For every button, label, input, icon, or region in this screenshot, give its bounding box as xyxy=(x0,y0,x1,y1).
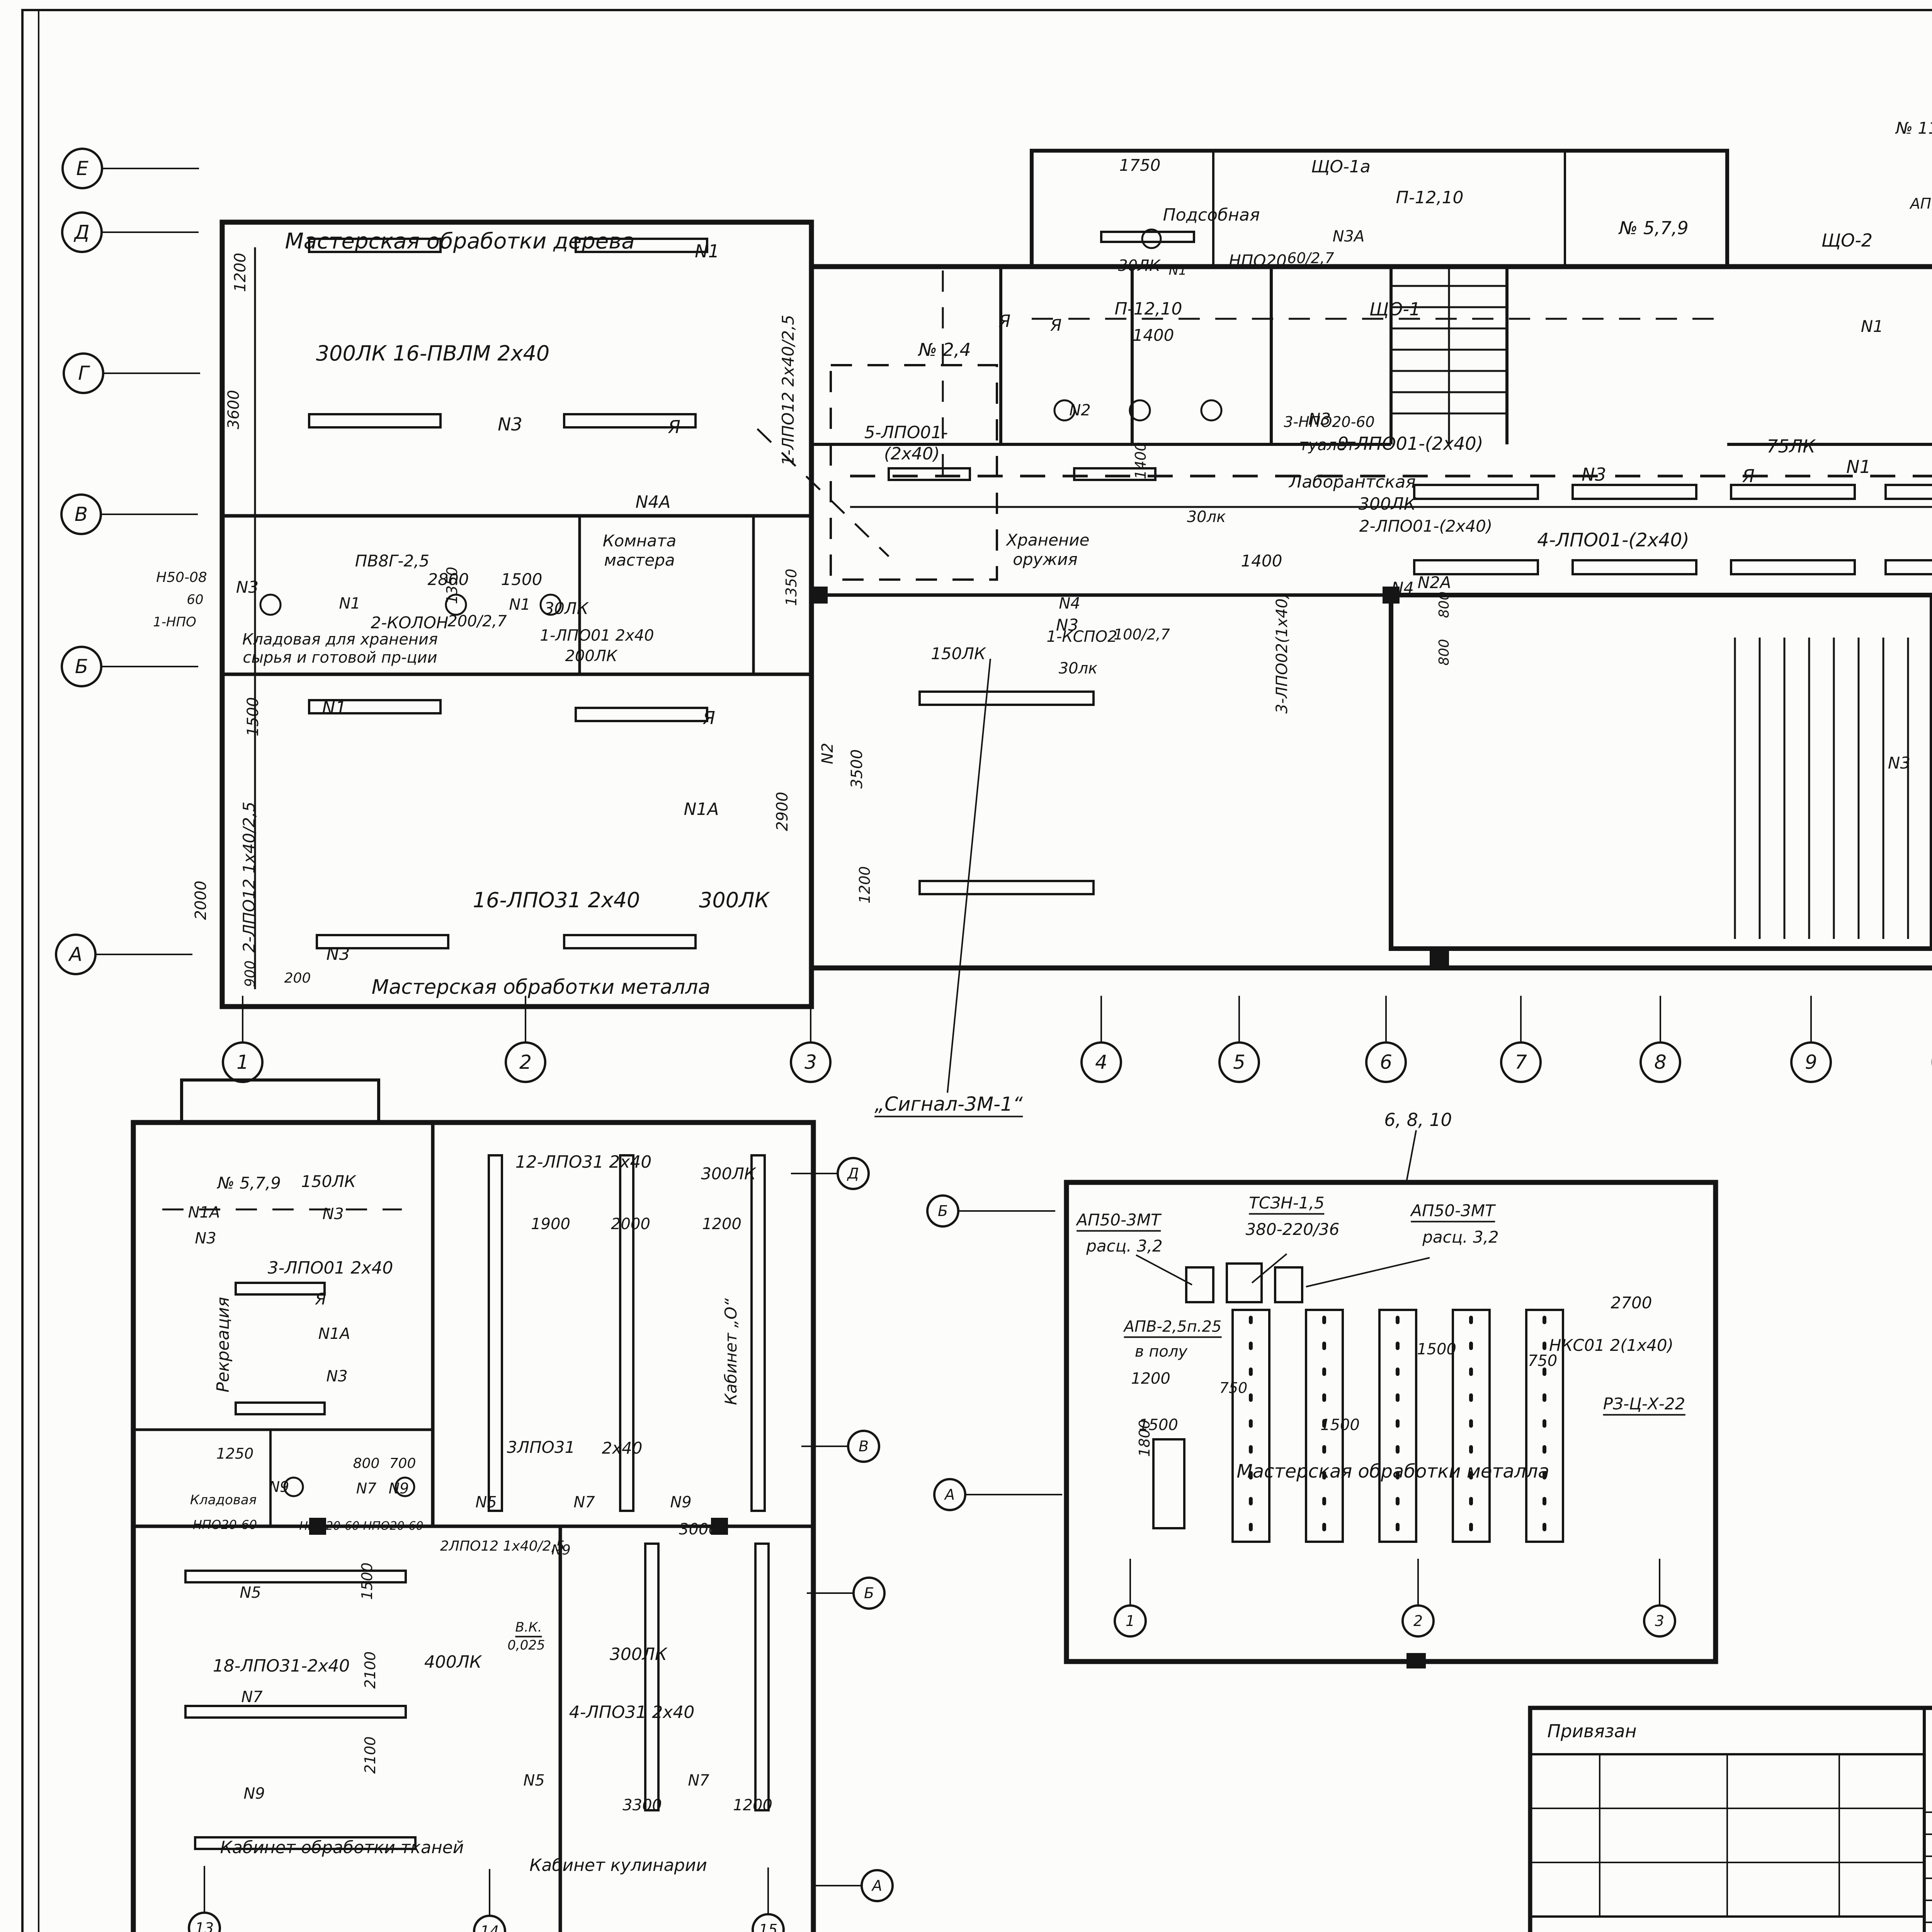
annotation: „Сигнал-3М-1“ xyxy=(874,1095,1023,1117)
annotation: Мастерская обработки металла xyxy=(1236,1462,1549,1481)
annotation: N2 xyxy=(820,743,835,764)
annotation: 300ЛК xyxy=(1359,496,1416,513)
annotation: Кладовая xyxy=(190,1493,257,1507)
annotation: N3 xyxy=(498,415,522,433)
annotation: Я xyxy=(999,313,1011,330)
annotation: 900 xyxy=(243,961,257,987)
grid-axis-bubble: 7 xyxy=(1500,1041,1542,1083)
annotation: 1200 xyxy=(857,866,872,904)
annotation: 2000 xyxy=(611,1216,650,1232)
annotation: ТСЗН-1,5 xyxy=(1249,1195,1324,1215)
stairs xyxy=(1391,267,1932,939)
annotation: Мастерская обработки дерева xyxy=(285,231,634,252)
annotation: N1 xyxy=(322,699,347,717)
annotation: 1350 xyxy=(784,569,799,606)
annotation: АПВ-2,5п.25 xyxy=(1124,1319,1222,1338)
annotation: N7 xyxy=(688,1773,709,1788)
annotation: ЩО-1 xyxy=(1369,300,1420,318)
annotation: 200/2,7 xyxy=(447,614,507,629)
grid-axis-bubble: 2 xyxy=(1401,1604,1435,1638)
annotation: 6, 8, 10 xyxy=(1384,1111,1452,1129)
annotation: 30лк xyxy=(1187,509,1226,525)
annotation: Комната xyxy=(603,533,677,549)
annotation: N2А xyxy=(1418,575,1451,591)
annotation: 5-ЛПО01- xyxy=(864,424,948,441)
annotation: 12-ЛПО31 2x40 xyxy=(515,1154,652,1171)
grid-axis-bubble: Б xyxy=(926,1194,959,1228)
annotation: 750 xyxy=(1219,1381,1248,1395)
annotation: N3 xyxy=(322,1206,344,1222)
annotation: в полу xyxy=(1135,1344,1187,1359)
annotation: 800 xyxy=(1437,639,1451,666)
annotation: 700 xyxy=(389,1457,416,1471)
annotation: 3-ЛПО01 2x40 xyxy=(268,1260,393,1277)
annotation: 3-ЛПО02(1x40) xyxy=(1274,592,1290,714)
annotation: N3 xyxy=(1582,466,1606,483)
annotation: Кладовая для хранения xyxy=(242,632,438,647)
annotation: Хранение xyxy=(1006,532,1089,548)
grid-axis-bubble: 1 xyxy=(222,1041,264,1083)
grid-axis-bubble: А xyxy=(55,934,97,975)
grid-axis-bubble: В xyxy=(847,1430,880,1463)
grid-axis-bubble: Б xyxy=(61,646,102,687)
annotation: Н50-08 xyxy=(156,571,207,585)
annotation: № 5,7,9 xyxy=(218,1175,281,1191)
annotation: 300ЛК xyxy=(610,1646,667,1663)
annotation: Лаборантская xyxy=(1289,474,1416,491)
annotation: П-12,10 xyxy=(1115,301,1182,318)
annotation: 3500 xyxy=(849,749,865,789)
annotation: В.К. xyxy=(515,1621,542,1638)
annotation: НПО20-60 НПО20-60 xyxy=(299,1520,423,1532)
annotation: 0,025 xyxy=(507,1639,545,1652)
annotation: 2ЛПО12 1x40/2,5 xyxy=(440,1539,565,1553)
annotation: Я xyxy=(315,1291,326,1307)
annotation: ПВ8Г-2,5 xyxy=(355,553,429,569)
annotation: 1400 xyxy=(1133,327,1174,344)
annotation: N1 xyxy=(695,242,719,260)
annotation: 16-ЛПО31 2x40 xyxy=(473,890,640,911)
annotation: ЩО-2 xyxy=(1821,231,1872,249)
annotation: 750 xyxy=(1528,1353,1557,1369)
annotation: N1А xyxy=(188,1205,220,1220)
annotation: РЗ-Ц-Х-22 xyxy=(1603,1396,1685,1416)
annotation: N9 xyxy=(269,1480,289,1494)
annotation: 9-ЛПО01-(2x40) xyxy=(1337,435,1483,452)
annotation: N3 xyxy=(1888,755,1910,771)
annotation: 2-КОЛОН xyxy=(371,615,449,631)
annotation: 30лк xyxy=(1059,661,1098,676)
annotation: расц. 3,2 xyxy=(1086,1238,1163,1254)
drawing-sheet: 7 Мастерская обработки дереваN1300ЛК 16-… xyxy=(0,0,1932,1932)
grid-axis-bubble: Д xyxy=(61,211,103,253)
grid-axis-bubble: 8 xyxy=(1639,1041,1681,1083)
annotation: N1 xyxy=(339,596,360,611)
annotation: 800 xyxy=(1437,592,1451,618)
annotation: N2 xyxy=(1069,403,1090,418)
annotation: 18-ЛПО31-2x40 xyxy=(213,1658,350,1675)
annotation: мастера xyxy=(604,552,675,568)
annotation: 2x40 xyxy=(602,1440,642,1456)
workbenches xyxy=(1233,1310,1563,1542)
annotation: N5 xyxy=(523,1773,544,1788)
annotation: 200ЛК xyxy=(565,648,617,664)
annotation: N7 xyxy=(356,1481,377,1496)
annotation: АП50-3МТ xyxy=(1077,1212,1161,1232)
annotation: N3А xyxy=(1333,229,1365,244)
annotation: 30ЛК xyxy=(544,600,588,617)
annotation: 300ЛК xyxy=(699,890,769,911)
annotation: 4-ЛПО01-(2x40) xyxy=(1537,531,1689,549)
grid-axis-bubble: 6 xyxy=(1365,1041,1407,1083)
annotation: 2800 xyxy=(428,571,469,588)
annotation: 200 xyxy=(284,971,311,985)
panel-boxes xyxy=(309,587,1932,1668)
annotation: N3 xyxy=(236,579,259,595)
annotation: 2100 xyxy=(363,1651,378,1689)
annotation: N9 xyxy=(243,1786,265,1801)
annotation: 1900 xyxy=(531,1216,570,1232)
grid-axis-bubble: 3 xyxy=(1643,1604,1676,1638)
annotation: 1500 xyxy=(1417,1342,1456,1357)
annotation: Я xyxy=(668,418,680,436)
annotation: 1200 xyxy=(1131,1371,1170,1386)
annotation: N3 xyxy=(327,946,350,963)
annotation: 1-НПО xyxy=(153,616,196,629)
annotation: N3 xyxy=(195,1231,216,1246)
annotation: туалет xyxy=(1299,437,1355,453)
annotation: № 5,7,9 xyxy=(1619,219,1689,237)
annotation: расц. 3,2 xyxy=(1422,1229,1499,1245)
annotation: 30ЛК xyxy=(1118,258,1160,274)
annotation: 1200 xyxy=(733,1798,772,1813)
annotation: N4 xyxy=(1059,596,1080,611)
annotation: N9 xyxy=(551,1543,571,1557)
annotation: 3-НПО20-60 xyxy=(1284,415,1374,429)
annotation: 2-ЛПО01-(2x40) xyxy=(1359,518,1493,534)
grid-axis-bubble: Е xyxy=(61,148,103,189)
annotation: 1200 xyxy=(702,1216,742,1232)
annotation: N3 xyxy=(326,1369,347,1384)
annotation: Кабинет обработки тканей xyxy=(220,1839,464,1856)
grid-axis-bubble: Г xyxy=(63,352,104,394)
annotation: сырья и готовой пр-ции xyxy=(243,650,437,665)
grid-axis-bubble: 4 xyxy=(1080,1041,1122,1083)
annotation: П-12,10 xyxy=(1396,189,1464,206)
annotation: № 2,4 xyxy=(918,341,971,359)
annotation: 150ЛК xyxy=(931,646,986,662)
annotation: Кабинет кулинарии xyxy=(529,1857,707,1874)
annotation: 150ЛК xyxy=(301,1173,356,1190)
annotation: Мастерская обработки металла xyxy=(372,977,711,997)
annotation: 400ЛК xyxy=(424,1654,481,1671)
grid-axis-bubble: 9 xyxy=(1790,1041,1832,1083)
annotation: N9 xyxy=(389,1481,409,1496)
annotation: 1500 xyxy=(1320,1417,1360,1433)
annotation: 100/2,7 xyxy=(1114,627,1170,642)
annotation: № 11,12 xyxy=(1896,120,1932,136)
annotation: Я xyxy=(1742,467,1755,485)
annotation: N5 xyxy=(240,1585,261,1600)
annotation: 1-ЛПО12 2x40/2,5 xyxy=(780,315,796,466)
annotation: оружия xyxy=(1013,551,1078,568)
annotation: НКС01 2(1x40) xyxy=(1549,1337,1673,1354)
annotation: Подсобная xyxy=(1163,207,1260,224)
annotation: 2-ЛПО12 1x40/2,5 xyxy=(241,802,257,953)
annotation: N1 xyxy=(509,597,530,612)
grid-axis-bubble: 1 xyxy=(1114,1604,1147,1638)
annotation: N4А xyxy=(635,494,670,511)
annotation: 3000 xyxy=(679,1522,718,1537)
annotation: 3300 xyxy=(622,1798,662,1813)
grid-axis-bubble: А xyxy=(933,1478,966,1511)
grid-axis-bubble: Д xyxy=(837,1157,870,1190)
annotation: НПО20 xyxy=(1229,253,1287,269)
annotation: 3ЛПО31 xyxy=(507,1439,575,1456)
annotation: НПО20-60 xyxy=(193,1519,257,1531)
luminaires xyxy=(309,232,1932,948)
grid-axis-bubble: Б xyxy=(852,1577,886,1610)
grid-axis-bubble: 3 xyxy=(790,1041,832,1083)
grid-axis-bubble: 5 xyxy=(1218,1041,1260,1083)
annotation: АП-16,20 xyxy=(1910,196,1932,211)
annotation: 300ЛК xyxy=(701,1166,756,1182)
annotation: 1500 xyxy=(245,697,261,736)
annotation: АП50-3МТ xyxy=(1411,1203,1495,1223)
annotation: 60/2,7 xyxy=(1287,251,1334,265)
annotation: N4 xyxy=(1391,580,1414,596)
annotation: 800 xyxy=(353,1457,380,1471)
annotation: (2x40) xyxy=(884,446,940,463)
annotation: 1750 xyxy=(1119,157,1161,173)
annotation: 1500 xyxy=(501,571,543,588)
annotation: 300ЛК 16-ПВЛМ 2x40 xyxy=(316,343,549,364)
annotation: 4-ЛПО31 2x40 xyxy=(569,1704,695,1721)
annotation: 380-220/36 xyxy=(1245,1221,1339,1238)
annotation: 1-ЛПО01 2x40 xyxy=(540,628,654,643)
annotation: N1 xyxy=(1861,318,1883,335)
annotation: 2100 xyxy=(363,1736,378,1774)
grid-axis-bubble: А xyxy=(861,1869,894,1902)
annotation: ЩО-1а xyxy=(1311,158,1371,175)
title-block-lines xyxy=(1530,1708,1932,1932)
annotation: 1800 xyxy=(1137,1420,1152,1457)
annotation: Я xyxy=(1050,317,1061,333)
annotation: N3 xyxy=(1056,617,1078,633)
annotation: Я xyxy=(703,709,715,727)
annotation: 75ЛК xyxy=(1767,437,1815,455)
annotation: N1 xyxy=(1846,458,1871,476)
circuits xyxy=(162,236,1932,1287)
annotation: 2700 xyxy=(1611,1295,1652,1311)
annotation: 2000 xyxy=(193,881,209,920)
annotation: N1А xyxy=(684,801,719,818)
annotation: N9 xyxy=(670,1495,691,1510)
annotation: N7 xyxy=(573,1495,595,1510)
grid-axis-bubble: В xyxy=(60,493,102,535)
annotation: 1250 xyxy=(216,1446,254,1461)
annotation: Рекреация xyxy=(215,1297,232,1392)
grid-axis-bubble: 2 xyxy=(505,1041,546,1083)
annotation: 3600 xyxy=(226,390,241,429)
main-plan-walls xyxy=(222,151,1932,1007)
annotation: 1200 xyxy=(233,253,248,292)
annotation: 60 xyxy=(187,593,203,606)
annotation: 1400 xyxy=(1133,442,1148,480)
annotation: Кабинет „О“ xyxy=(723,1298,739,1405)
annotation: 1500 xyxy=(360,1563,374,1600)
annotation: 2900 xyxy=(775,792,790,831)
annotation: N1 xyxy=(1168,264,1187,277)
plan-linework xyxy=(0,0,1932,1932)
annotation: N5 xyxy=(475,1495,497,1510)
stamp-binding-note: Привязан xyxy=(1547,1722,1636,1740)
annotation: 1400 xyxy=(1241,553,1282,569)
annotation: N7 xyxy=(241,1689,262,1705)
annotation: N1А xyxy=(318,1326,350,1342)
